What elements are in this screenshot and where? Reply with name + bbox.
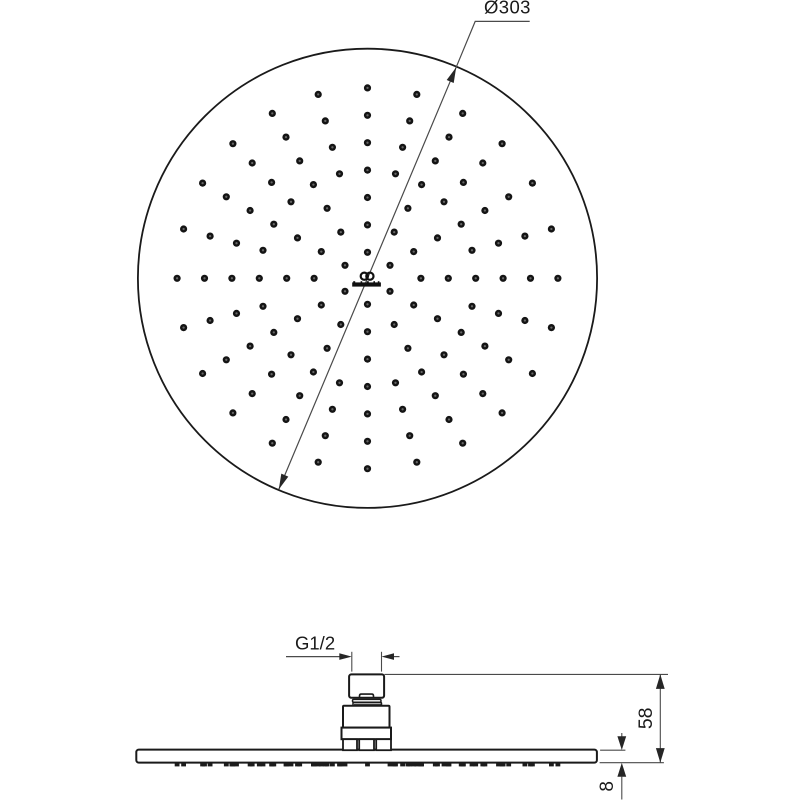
svg-text:8: 8 <box>597 781 618 792</box>
svg-text:58: 58 <box>635 707 657 729</box>
svg-text:G1/2: G1/2 <box>295 633 335 654</box>
svg-text:Ø303: Ø303 <box>484 0 531 18</box>
